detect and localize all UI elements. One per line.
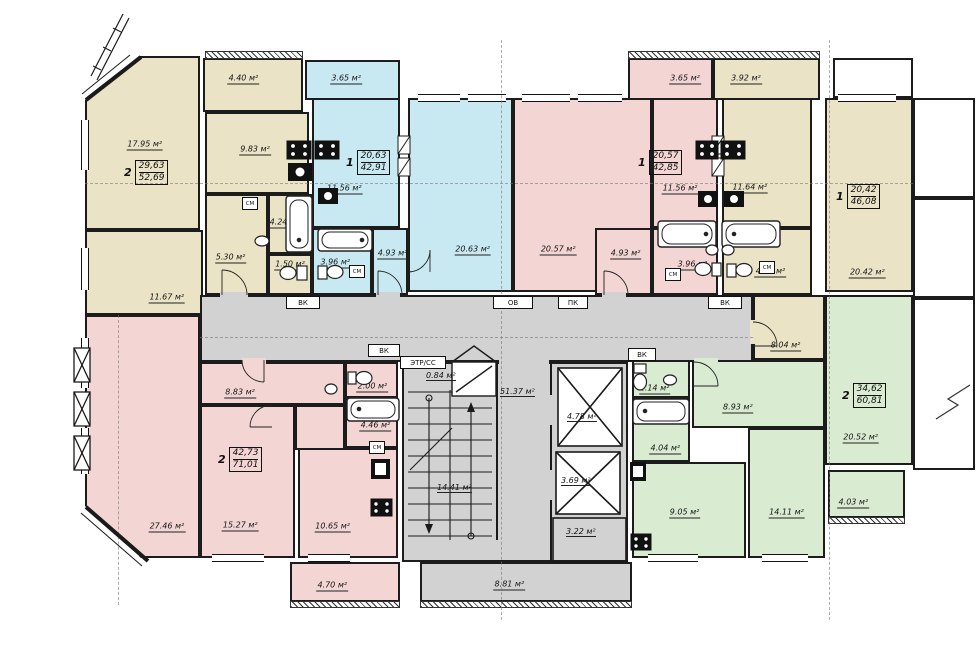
door-opening-a [220,292,248,301]
balcony-rail [628,51,820,59]
area-label-lift2: 3.69 м² [561,476,591,486]
area-label: 1.50 м² [274,259,306,270]
area-label-corridor: 51.37 м² [500,387,535,397]
label-vk-4: ВК [368,344,400,357]
total-area: 71,01 [233,460,259,471]
area-label-shaft: 3.22 м² [566,527,596,537]
area-label: 4.03 м² [838,497,870,508]
area-label: 11.64 м² [731,183,768,194]
total-area: 60,81 [857,396,883,407]
room-a-living: 17.95 м² [85,56,200,230]
window [308,554,350,562]
rooms-count: 2 [124,166,132,179]
room-d-hall: 8.04 м² [753,295,825,360]
area-label: 20.57 м² [540,245,577,256]
area-label: 20.63 м² [454,245,491,256]
area-label: 4.40 м² [228,74,260,85]
core-balcony: 8.81 м² [420,562,632,602]
window [81,428,89,474]
door-opening-f [242,358,266,367]
window [522,94,570,102]
area-label: 3.96 м² [677,260,709,271]
area-label: 3.65 м² [330,74,362,85]
living-area: 20,57 [653,151,679,163]
living-area: 20,63 [361,151,387,163]
rooms-count: 1 [346,156,354,169]
door-opening-stairs [492,540,501,558]
room-c-balcony: 3.65 м² [628,58,713,100]
balcony-rail [290,601,400,608]
apartment-info-f: 2 42,7371,01 [218,447,262,472]
area-label-lift1: 4.78 м² [567,412,597,422]
washing-machine-a: СМ [242,197,258,210]
axis-line [85,183,913,184]
rooms-count: 1 [836,190,844,203]
neighbor-room-3 [913,298,975,470]
room-a-kitchen: 9.83 м² [205,112,309,194]
area-label: 11.67 м² [148,293,185,304]
door-opening-b [376,292,400,301]
room-b-living: 20.63 м² [408,98,513,292]
rooms-count: 2 [218,453,226,466]
balcony-rail [828,517,905,524]
total-area: 46,08 [851,197,877,208]
area-label: 4.70 м² [316,580,348,591]
living-area: 42,73 [233,448,259,460]
room-a-hall: 5.30 м² [205,194,268,295]
washing-machine-c: СМ [665,268,681,281]
window [418,94,460,102]
rooms-count: 2 [842,389,850,402]
room-e-bath: 4.04 м² [632,398,690,462]
axis-line [200,337,753,338]
neighbor-room-2 [913,198,975,298]
floor-plan: 17.95 м² 11.67 м² 4.40 м² 9.83 м² 5.30 м… [0,0,976,646]
area-label: 2.00 м² [357,382,389,393]
area-label: 3.65 м² [669,74,701,85]
room-d-balcony: 3.92 м² [713,58,820,100]
room-a-second: 11.67 м² [85,230,203,315]
apartment-info-b: 1 20,6342,91 [346,150,390,175]
room-a-wc: 1.50 м² [268,254,312,295]
room-f-hall: 8.83 м² [200,362,345,405]
area-label: 8.81 м² [494,579,526,590]
area-label: 10.65 м² [314,522,351,533]
axis-line [501,40,502,620]
apartment-info-e: 2 34,6260,81 [842,383,886,408]
label-vk-2: ВК [708,296,742,309]
room-e-wc: 2.14 м² [632,360,690,398]
label-pk: ПК [558,296,588,309]
room-e-kitchen: 9.05 м² [632,462,746,558]
area-label: 11.56 м² [326,184,363,195]
room-b-bath: 3.96 м² [312,228,372,295]
area-label: 4.46 м² [360,420,392,431]
living-area: 29,63 [139,161,165,173]
label-etr-ss: ЭТР/СС [400,356,446,369]
room-e-balcony: 4.03 м² [828,470,905,518]
window [81,248,89,290]
room-d-kitchen: 11.64 м² [722,98,812,228]
area-label: 20.42 м² [849,267,886,278]
axis-line [118,315,119,605]
area-label: 8.83 м² [224,387,256,398]
window [578,94,622,102]
room-e-living: 20.52 м² [825,295,913,465]
area-label-closet: 0.84 м² [426,371,456,381]
room-f-balcony: 4.70 м² [290,562,400,602]
room-b-balcony: 3.65 м² [305,60,400,100]
area-label: 4.93 м² [610,248,642,259]
area-label: 5.30 м² [215,253,247,264]
area-label: 9.83 м² [239,144,271,155]
area-label: 8.04 м² [770,340,802,351]
room-c-bath: 3.96 м² [652,228,718,295]
room-a-bath: 4.24 м² [268,194,312,254]
living-area: 20,42 [851,185,877,197]
axis-line [829,40,830,620]
area-label: 3.92 м² [730,74,762,85]
label-vk-1: ВК [286,296,320,309]
area-label: 4.04 м² [650,444,682,455]
window [81,338,89,388]
apartment-info-d: 1 20,4246,08 [836,184,880,209]
neighbor-terrace [833,58,913,98]
room-b-hall: 4.93 м² [372,228,408,295]
door-opening-e [694,358,718,367]
area-label: 27.46 м² [149,522,186,533]
total-area: 42,91 [361,163,387,174]
label-ov: ОВ [493,296,533,309]
area-label: 17.95 м² [126,139,163,150]
area-label: 20.52 м² [842,433,879,444]
area-label: 9.05 м² [669,507,701,518]
door-opening-d [750,320,759,344]
area-label: 15.27 м² [222,521,259,532]
washing-machine-d: СМ [759,261,775,274]
room-c-hall: 4.93 м² [595,228,652,295]
room-f-wc: 2.00 м² [345,362,398,398]
label-vk-3: ВК [628,348,656,361]
area-label-stairs: 14.41 м² [437,483,472,493]
living-area: 34,62 [857,384,883,396]
room-a-balcony: 4.40 м² [203,58,303,112]
balcony-rail [205,51,303,59]
washing-machine-f: СМ [369,441,385,454]
window [648,554,698,562]
balcony-rail [420,601,632,608]
corridor [200,295,753,362]
window [81,120,89,170]
area-label: 11.56 м² [662,184,699,195]
room-f-kitchen: 10.65 м² [298,448,398,558]
neighbor-room-1 [913,98,975,198]
window [212,554,264,562]
room-e-bedroom: 14.11 м² [748,428,825,558]
rooms-count: 1 [638,156,646,169]
area-label: 4.24 м² [269,217,301,228]
apartment-info-c: 1 20,5742,85 [638,150,682,175]
room-e-hall: 8.93 м² [692,360,825,428]
door-opening-c [602,292,626,301]
room-f-passage [295,405,345,450]
area-label: 8.93 м² [722,403,754,414]
room-f-bedroom: 15.27 м² [200,405,295,558]
washing-machine-b: СМ [349,265,365,278]
total-area: 52,69 [139,173,165,184]
total-area: 42,85 [653,163,679,174]
window [838,94,896,102]
area-label: 4.93 м² [377,248,409,259]
window [762,554,808,562]
area-label: 2.14 м² [639,384,671,395]
area-label: 14.11 м² [768,508,805,519]
apartment-info-a: 2 29,6352,69 [124,160,168,185]
corridor-opening [499,357,549,367]
area-label: 3.96 м² [319,257,351,268]
room-f-living: 27.46 м² [85,315,200,558]
